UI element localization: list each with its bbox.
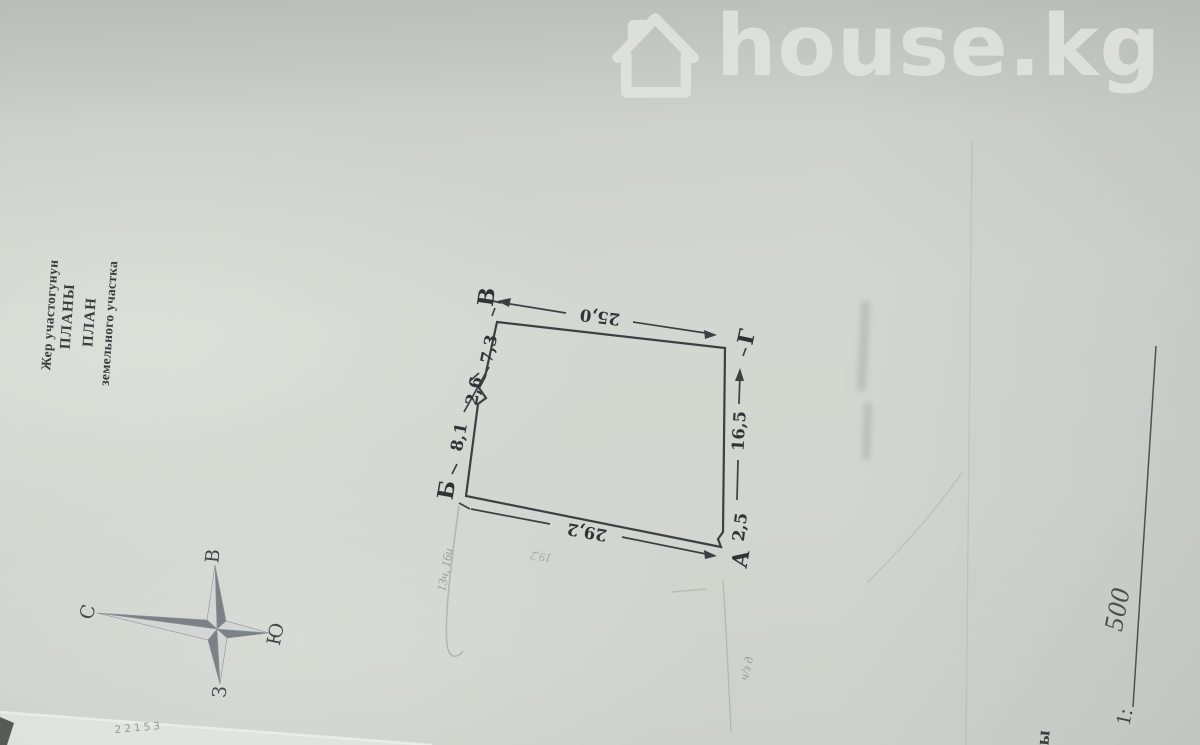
vertex-b-label: Б bbox=[433, 478, 462, 501]
compass-north-label: С bbox=[76, 602, 101, 621]
house-outline-icon bbox=[610, 6, 706, 102]
vertex-v-label: В bbox=[473, 286, 501, 308]
dim-top-label: 25,0 bbox=[579, 305, 621, 329]
dim-right-near-a-label: 2,5 bbox=[729, 512, 751, 543]
dim-left-seg2-label: 2,6 bbox=[462, 375, 486, 407]
dim-left-seg1-label: 8,1 bbox=[447, 421, 471, 453]
compass-east-label: В bbox=[201, 548, 224, 564]
scale-line bbox=[1133, 346, 1156, 707]
watermark-brand-text: house.kg bbox=[716, 0, 1161, 96]
compass-west-label: З bbox=[208, 685, 231, 699]
plot-boundary bbox=[466, 322, 725, 547]
site-watermark: house.kg bbox=[580, 0, 1200, 135]
dim-left-seg3-label: 7,3 bbox=[477, 333, 501, 365]
vertex-a-label: А bbox=[727, 548, 756, 570]
clipped-letter-fragment: ы bbox=[1032, 722, 1061, 745]
pencil-strokes bbox=[446, 471, 963, 732]
vertex-g-label: Г bbox=[733, 327, 762, 347]
compass-rose bbox=[97, 565, 269, 684]
land-plot-plan-photo: В Г Б А 25,0 29,2 16,5 2,5 8,1 2,6 7,3 С… bbox=[0, 0, 1200, 745]
compass-south-label: Ю bbox=[263, 621, 289, 648]
dim-right-main-label: 16,5 bbox=[728, 410, 749, 451]
fold-line bbox=[966, 140, 972, 745]
